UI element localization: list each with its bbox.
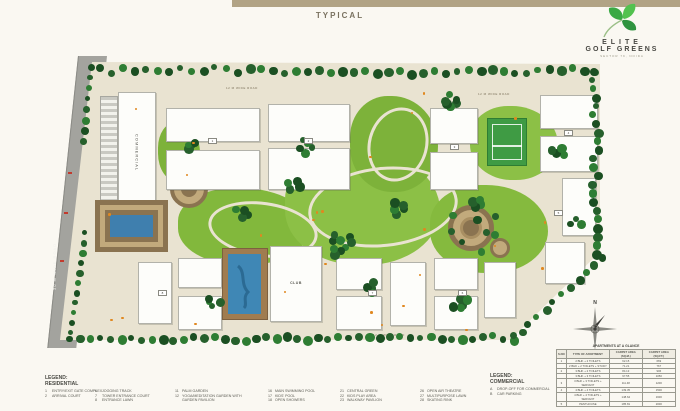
tree-icon xyxy=(293,177,302,186)
tree-icon xyxy=(583,269,590,276)
legend-commercial-items: ADROP-OFF FOR COMMERCIALBCAR PARKING xyxy=(490,387,550,396)
tree-icon xyxy=(327,69,335,77)
table-cell: 185.81 xyxy=(609,402,642,407)
stepped-water-court xyxy=(95,200,168,252)
tree-icon xyxy=(118,335,127,344)
tree-icon xyxy=(590,85,597,92)
tree-icon xyxy=(324,336,331,343)
tree-icon xyxy=(469,336,476,343)
tree-icon xyxy=(500,336,506,342)
tree-icon xyxy=(534,67,540,73)
tree-icon xyxy=(593,241,601,249)
tree-icon xyxy=(107,336,114,343)
tree-icon xyxy=(75,280,81,286)
garden-pavilion-circle xyxy=(490,238,510,258)
tower-block xyxy=(390,262,426,326)
tree-icon xyxy=(79,250,86,257)
tree-icon xyxy=(543,306,552,315)
entry-gate-marker xyxy=(60,260,64,262)
tree-icon xyxy=(519,329,527,337)
tree-icon xyxy=(594,172,602,180)
tree-icon xyxy=(376,334,386,344)
tree-icon xyxy=(590,261,599,270)
legend-item-number: 28 xyxy=(420,398,427,403)
tree-icon xyxy=(491,231,499,239)
tree-icon xyxy=(546,65,554,73)
car-parking-stalls xyxy=(100,96,118,212)
tree-icon xyxy=(589,189,597,197)
flowering-tree-dot xyxy=(324,263,327,266)
tower-number-tag: 7 xyxy=(368,290,377,296)
flowering-tree-dot xyxy=(321,210,324,213)
tree-icon xyxy=(314,334,323,343)
road-label: 30 M WIDE ROAD xyxy=(52,230,57,290)
tree-icon xyxy=(257,65,265,73)
tree-icon xyxy=(431,67,438,74)
internal-road-label-top-left: 12 M WIDE ROAD xyxy=(226,86,258,90)
tree-icon xyxy=(592,120,600,128)
tree-icon xyxy=(549,299,556,306)
tree-icon xyxy=(593,103,599,109)
tree-icon xyxy=(384,68,393,77)
table-cell: 2000 xyxy=(642,402,675,407)
tree-icon xyxy=(231,337,239,345)
legend-item-number: 2 xyxy=(45,394,52,399)
flowering-tree-dot xyxy=(369,156,372,159)
tree-icon xyxy=(72,300,77,305)
tree-icon xyxy=(594,215,602,223)
tree-icon xyxy=(142,66,149,73)
flowering-tree-dot xyxy=(370,311,373,314)
tree-icon xyxy=(438,335,447,344)
legend-item: 18OPEN SHOWERS xyxy=(268,398,315,403)
tree-icon xyxy=(417,335,423,341)
tree-icon xyxy=(446,91,453,98)
tree-icon xyxy=(169,337,177,345)
pool-water-icon xyxy=(228,254,261,314)
tree-icon xyxy=(365,333,375,343)
legend-item-text: YOGA/MEDITATION GARDEN WITH GARDEN PAVIL… xyxy=(182,394,244,403)
table-header-cell: CARPET AREA (SQ.FT.) xyxy=(642,350,675,359)
tree-icon xyxy=(131,67,140,76)
entry-gate-marker xyxy=(68,172,72,174)
brand-name-line1: ELITE xyxy=(572,39,672,46)
apartments-table: S.NOTYPE OF APARTMENTCARPET AREA (SQ.M.)… xyxy=(556,349,676,407)
table-cell: PENTHOUSE xyxy=(566,402,609,407)
tree-icon xyxy=(232,206,239,213)
tree-icon xyxy=(283,332,292,341)
tree-icon xyxy=(81,127,89,135)
club-building: CLUB xyxy=(270,246,322,322)
legend-commercial: LEGEND: COMMERCIAL ADROP-OFF FOR COMMERC… xyxy=(490,373,550,396)
table-row: 33 BHK + 3 TOILETS + SERVANT111.481200 xyxy=(557,379,676,388)
commercial-label: COMMERCIAL xyxy=(119,93,155,213)
flowering-tree-dot xyxy=(423,228,426,231)
legend-item: 8ENTRANCE LAWN xyxy=(95,398,150,403)
main-swimming-pool xyxy=(228,254,261,314)
tree-icon xyxy=(448,336,455,343)
tennis-court xyxy=(487,118,527,166)
legend-commercial-subtitle: COMMERCIAL xyxy=(490,379,550,385)
legend-item-number: 12 xyxy=(175,394,182,403)
tree-icon xyxy=(223,65,230,72)
table-cell: 1200 xyxy=(642,379,675,388)
clover-leaf-icon xyxy=(600,0,644,38)
legend-residential: LEGEND: RESIDENTIAL xyxy=(45,375,78,387)
tree-icon xyxy=(373,69,383,79)
flowering-tree-dot xyxy=(316,211,319,214)
apartments-table-title: APARTMENTS AT A GLANCE xyxy=(556,344,676,348)
tree-icon xyxy=(159,335,169,345)
table-cell: 3 xyxy=(557,379,567,388)
legend-item: 23WALKWAY PAVILION xyxy=(340,398,382,403)
tree-icon xyxy=(441,97,450,106)
tree-icon xyxy=(180,336,189,345)
tree-icon xyxy=(315,66,324,75)
tree-icon xyxy=(558,291,564,297)
legend-item-text: WALKWAY PAVILION xyxy=(347,398,382,403)
tower-block xyxy=(434,258,478,290)
table-header-cell: S.NO xyxy=(557,350,567,359)
table-cell: 148.64 xyxy=(609,393,642,402)
tree-icon xyxy=(449,302,458,311)
tree-icon xyxy=(592,94,601,103)
legend-column: 16MAIN SWIMMING POOL17KIDS' POOL18OPEN S… xyxy=(268,389,315,403)
tree-icon xyxy=(303,336,313,346)
tree-icon xyxy=(427,333,435,341)
commercial-building: COMMERCIAL xyxy=(118,92,156,214)
tree-icon xyxy=(599,254,607,262)
tree-icon xyxy=(590,68,598,76)
tree-icon xyxy=(477,67,487,77)
flowering-tree-dot xyxy=(192,142,195,145)
tree-icon xyxy=(488,65,498,75)
tree-icon xyxy=(284,179,292,187)
tower-block xyxy=(166,108,260,142)
tree-icon xyxy=(576,276,585,285)
tree-icon xyxy=(593,207,602,216)
tree-icon xyxy=(524,321,531,328)
table-row: 4 BHK + 4 TOILETS + SERVANT148.641600 xyxy=(557,393,676,402)
tree-icon xyxy=(304,68,312,76)
tree-icon xyxy=(492,213,499,220)
tree-icon xyxy=(246,64,256,74)
tree-icon xyxy=(399,201,408,210)
table-cell: 111.48 xyxy=(609,379,642,388)
tree-icon xyxy=(190,333,197,340)
legend-item-text: CAR PARKING xyxy=(497,392,522,397)
tree-icon xyxy=(211,333,219,341)
tower-block xyxy=(430,108,478,144)
tree-icon xyxy=(216,298,225,307)
site-plan-page: TYPICAL ELITE GOLF GREENS SECTOR 79, NOI… xyxy=(0,0,680,411)
tower-number-tag: 2 xyxy=(304,138,313,144)
tree-icon xyxy=(557,66,566,75)
flowering-tree-dot xyxy=(514,117,517,120)
legend-item-text: SKATING RINK xyxy=(427,398,452,403)
tree-icon xyxy=(87,75,93,81)
tower-number-tag: 8 xyxy=(158,290,167,296)
table-cell: 1600 xyxy=(642,393,675,402)
tower-block xyxy=(336,296,382,330)
tree-icon xyxy=(234,69,242,77)
table-cell: 4 BHK + 4 TOILETS + SERVANT xyxy=(566,393,609,402)
tree-icon xyxy=(347,238,356,247)
tree-icon xyxy=(569,64,576,71)
tree-icon xyxy=(595,146,604,155)
tree-icon xyxy=(350,68,359,77)
tree-icon xyxy=(463,295,472,304)
tree-icon xyxy=(500,67,508,75)
tree-icon xyxy=(589,155,596,162)
tower-block xyxy=(166,150,260,190)
tree-icon xyxy=(386,333,394,341)
tree-icon xyxy=(589,111,596,118)
legend-column: 6JOGGING TRACK7TOWER ENTRANCE COURT8ENTR… xyxy=(95,389,150,403)
tree-icon xyxy=(478,248,485,255)
club-label: CLUB xyxy=(271,281,321,285)
tree-icon xyxy=(442,70,450,78)
legend-column: 1ENTRY/EXIT GATE COMPLEX2ARRIVAL COURT xyxy=(45,389,102,398)
tree-icon xyxy=(128,335,134,341)
tree-icon xyxy=(269,67,278,76)
tree-icon xyxy=(292,67,301,76)
tree-icon xyxy=(588,181,597,190)
legend-residential-columns: 1ENTRY/EXIT GATE COMPLEX2ARRIVAL COURT6J… xyxy=(45,389,485,411)
table-cell: 5 xyxy=(557,402,567,407)
tree-icon xyxy=(108,70,115,77)
tree-icon xyxy=(458,335,467,344)
tree-icon xyxy=(293,335,301,343)
master-plan: 30 M WIDE ROAD COMMERCIAL xyxy=(38,52,613,354)
table-header-cell: TYPE OF APARTMENT xyxy=(566,350,609,359)
tower-block xyxy=(484,262,516,318)
flowering-tree-dot xyxy=(541,267,544,270)
tree-icon xyxy=(419,69,428,78)
tree-icon xyxy=(479,333,487,341)
legend-item-number: 8 xyxy=(95,398,102,403)
flowering-tree-dot xyxy=(108,213,111,216)
legend-item: BCAR PARKING xyxy=(490,392,550,397)
tree-icon xyxy=(221,335,230,344)
legend-item-number: 18 xyxy=(268,398,275,403)
flowering-tree-dot xyxy=(423,92,426,95)
tree-icon xyxy=(407,334,415,342)
tower-block xyxy=(268,104,350,142)
legend-column: 11PALM GARDEN12YOGA/MEDITATION GARDEN WI… xyxy=(175,389,244,403)
tower-number-tag: 1 xyxy=(208,138,217,144)
legend-item: 2ARRIVAL COURT xyxy=(45,394,102,399)
table-cell: 2 BHK + 2 TOILETS + STUDY xyxy=(566,364,609,369)
tree-icon xyxy=(200,334,209,343)
tree-icon xyxy=(200,67,209,76)
flowering-tree-dot xyxy=(260,234,263,237)
tree-icon xyxy=(252,335,261,344)
internal-road-label-top-right: 12 M WIDE ROAD xyxy=(478,92,510,96)
tower-number-tag: 4 xyxy=(564,130,573,136)
tree-icon xyxy=(80,138,87,145)
legend-item-number: B xyxy=(490,392,497,397)
tree-icon xyxy=(476,196,484,204)
legend-item: 12YOGA/MEDITATION GARDEN WITH GARDEN PAV… xyxy=(175,394,244,403)
tree-icon xyxy=(330,245,338,253)
flowering-tree-dot xyxy=(419,274,422,277)
legend-item: 28SKATING RINK xyxy=(420,398,466,403)
tree-icon xyxy=(242,337,251,346)
tree-icon xyxy=(177,65,183,71)
legend-item-text: ARRIVAL COURT xyxy=(52,394,81,399)
apartments-table-box: APARTMENTS AT A GLANCE S.NOTYPE OF APART… xyxy=(556,344,676,407)
tree-icon xyxy=(74,290,81,297)
tree-icon xyxy=(81,240,88,247)
tree-icon xyxy=(165,68,173,76)
legend-residential-subtitle: RESIDENTIAL xyxy=(45,381,78,387)
tree-icon xyxy=(511,70,518,77)
tree-icon xyxy=(149,336,157,344)
tree-icon xyxy=(119,64,127,72)
table-cell xyxy=(557,393,567,402)
tree-icon xyxy=(567,284,575,292)
tree-icon xyxy=(273,334,283,344)
tower-number-tag: 5 xyxy=(554,210,563,216)
table-row: 5PENTHOUSE185.812000 xyxy=(557,402,676,407)
tree-icon xyxy=(188,68,195,75)
tree-icon xyxy=(483,229,489,235)
tower-number-tag: 3 xyxy=(450,144,459,150)
brand-block: ELITE GOLF GREENS SECTOR 79, NOIDA xyxy=(572,0,672,58)
tree-icon xyxy=(281,70,288,77)
tower-block xyxy=(430,152,478,190)
tree-icon xyxy=(557,144,566,153)
tree-icon xyxy=(577,220,586,229)
table-cell: 3 BHK + 3 TOILETS + SERVANT xyxy=(566,379,609,388)
tower-block xyxy=(178,258,222,288)
tree-icon xyxy=(78,260,84,266)
legend-column: 21CENTRAL GREEN22KIDS PLAY AREA23WALKWAY… xyxy=(340,389,382,403)
tower-number-tag: 6 xyxy=(458,290,467,296)
tree-icon xyxy=(390,198,399,207)
tree-icon xyxy=(76,335,85,344)
tree-icon xyxy=(533,314,539,320)
legend-item-number: 23 xyxy=(340,398,347,403)
entry-gate-marker xyxy=(64,212,68,214)
tree-icon xyxy=(589,77,595,83)
table-header-cell: CARPET AREA (SQ.M.) xyxy=(609,350,642,359)
tree-icon xyxy=(345,335,352,342)
legend-item-text: ENTRANCE LAWN xyxy=(102,398,133,403)
tree-icon xyxy=(138,337,145,344)
tree-icon xyxy=(589,163,598,172)
tree-icon xyxy=(580,67,589,76)
tree-icon xyxy=(473,216,481,224)
tree-icon xyxy=(66,336,73,343)
tree-icon xyxy=(338,67,347,76)
tree-icon xyxy=(448,228,455,235)
tree-icon xyxy=(82,117,90,125)
legend-column: 26OPEN AIR THEATRE27MULTIPURPOSE LAWN28S… xyxy=(420,389,466,403)
page-title: TYPICAL xyxy=(240,11,440,20)
flowering-tree-dot xyxy=(544,221,547,224)
tree-icon xyxy=(594,137,602,145)
tree-icon xyxy=(97,335,103,341)
tree-icon xyxy=(449,212,457,220)
tree-icon xyxy=(87,335,95,343)
flowering-tree-dot xyxy=(402,305,405,308)
legend-item-text: OPEN SHOWERS xyxy=(275,398,305,403)
tree-icon xyxy=(489,332,496,339)
flowering-tree-dot xyxy=(194,323,197,326)
flowering-tree-dot xyxy=(312,219,315,222)
